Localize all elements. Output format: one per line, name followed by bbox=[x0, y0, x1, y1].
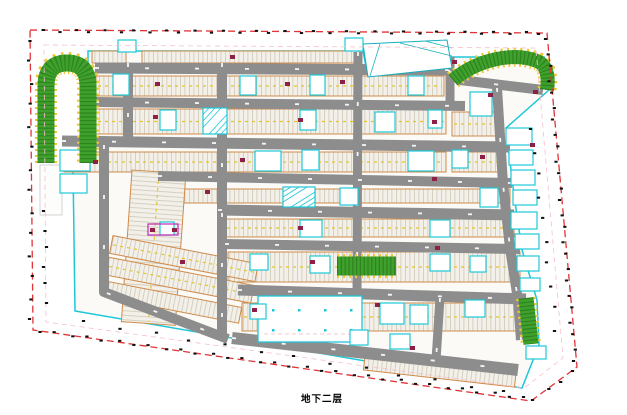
equipment-marker bbox=[252, 308, 257, 312]
survey-tick bbox=[541, 217, 544, 219]
stair-core-room bbox=[511, 212, 537, 229]
survey-tick bbox=[367, 374, 370, 376]
survey-tick bbox=[193, 30, 196, 32]
survey-tick bbox=[463, 31, 466, 33]
survey-tick bbox=[560, 188, 563, 190]
survey-tick bbox=[42, 266, 45, 268]
column-dot bbox=[272, 329, 275, 332]
survey-tick bbox=[328, 32, 331, 34]
survey-tick bbox=[365, 367, 368, 369]
equipment-marker bbox=[93, 160, 98, 164]
stair-core-room bbox=[390, 334, 410, 349]
survey-tick bbox=[435, 31, 438, 33]
stair-core-room bbox=[340, 188, 358, 205]
survey-tick bbox=[508, 33, 511, 35]
survey-tick bbox=[550, 92, 553, 94]
survey-tick bbox=[402, 30, 405, 32]
survey-tick bbox=[259, 361, 262, 363]
survey-tick bbox=[554, 134, 557, 136]
survey-tick bbox=[31, 275, 34, 277]
survey-tick bbox=[223, 343, 226, 345]
survey-tick bbox=[255, 30, 258, 32]
survey-tick bbox=[470, 386, 473, 388]
survey-tick bbox=[553, 107, 556, 109]
survey-tick bbox=[558, 199, 561, 201]
survey-tick bbox=[30, 83, 33, 85]
survey-tick bbox=[71, 335, 74, 337]
stair-core-room bbox=[465, 300, 485, 317]
survey-tick bbox=[547, 388, 550, 390]
survey-tick bbox=[226, 357, 229, 359]
stair-core-room bbox=[513, 190, 537, 205]
stair-core-room bbox=[452, 150, 468, 168]
survey-tick bbox=[568, 322, 571, 324]
survey-tick bbox=[165, 29, 168, 31]
equipment-marker bbox=[180, 260, 185, 264]
survey-tick bbox=[29, 169, 32, 171]
survey-tick bbox=[554, 161, 557, 163]
stair-core-room bbox=[160, 110, 176, 130]
equipment-marker bbox=[205, 190, 210, 194]
stair-core-room bbox=[310, 256, 330, 273]
survey-tick bbox=[165, 348, 168, 350]
equipment-marker bbox=[153, 115, 158, 119]
equipment-marker bbox=[230, 55, 235, 59]
stair-core-room bbox=[526, 346, 546, 359]
stair-core-room bbox=[60, 174, 87, 193]
survey-tick bbox=[428, 383, 431, 385]
survey-tick bbox=[222, 30, 225, 32]
survey-tick bbox=[480, 33, 483, 35]
survey-tick bbox=[553, 306, 556, 308]
equipment-marker bbox=[488, 93, 493, 97]
survey-tick bbox=[118, 328, 121, 330]
equipment-marker bbox=[310, 260, 315, 264]
survey-tick bbox=[567, 268, 570, 270]
survey-tick bbox=[283, 30, 286, 32]
stair-core-room bbox=[410, 305, 428, 324]
side-lane-strip bbox=[40, 165, 62, 215]
survey-tick bbox=[29, 103, 32, 105]
equipment-marker bbox=[240, 158, 245, 162]
survey-tick bbox=[273, 361, 276, 363]
stair-core-room bbox=[430, 220, 450, 237]
survey-tick bbox=[531, 399, 534, 401]
stair-core-room bbox=[408, 76, 424, 95]
survey-tick bbox=[287, 366, 290, 368]
survey-tick bbox=[544, 38, 547, 40]
survey-tick bbox=[53, 331, 56, 333]
escalator-core-room bbox=[283, 187, 315, 207]
survey-tick bbox=[75, 29, 78, 31]
survey-tick bbox=[345, 30, 348, 32]
parking-row bbox=[218, 219, 514, 237]
survey-tick bbox=[85, 335, 88, 337]
stair-core-room bbox=[113, 74, 129, 95]
survey-tick bbox=[565, 280, 568, 282]
survey-tick bbox=[31, 212, 34, 214]
survey-tick bbox=[418, 33, 421, 35]
survey-tick bbox=[30, 146, 33, 148]
parking-row bbox=[96, 76, 444, 96]
survey-tick bbox=[38, 331, 41, 333]
survey-tick bbox=[212, 353, 215, 355]
stair-core-room bbox=[350, 330, 368, 345]
survey-tick bbox=[537, 172, 540, 174]
stair-core-room bbox=[480, 188, 498, 207]
floor-plan-canvas bbox=[0, 0, 627, 415]
survey-tick bbox=[82, 320, 85, 322]
survey-tick bbox=[547, 53, 550, 55]
equipment-marker bbox=[432, 177, 437, 181]
parking-row bbox=[92, 51, 126, 63]
equipment-marker bbox=[410, 346, 415, 350]
stair-core-room bbox=[380, 303, 404, 324]
survey-tick bbox=[27, 60, 30, 62]
survey-tick bbox=[187, 340, 190, 342]
survey-tick bbox=[557, 172, 560, 174]
stair-core-room bbox=[509, 150, 533, 165]
survey-tick bbox=[571, 370, 574, 372]
survey-tick bbox=[381, 379, 384, 381]
survey-tick bbox=[549, 286, 552, 288]
survey-tick bbox=[146, 344, 149, 346]
survey-tick bbox=[103, 29, 106, 31]
survey-tick bbox=[564, 253, 567, 255]
survey-tick bbox=[525, 31, 528, 33]
equipment-marker bbox=[375, 303, 380, 307]
survey-tick bbox=[29, 298, 32, 300]
survey-tick bbox=[240, 357, 243, 359]
stair-core-room bbox=[511, 170, 535, 185]
stair-core-room bbox=[517, 256, 539, 271]
survey-tick bbox=[320, 370, 323, 372]
survey-tick bbox=[529, 128, 532, 130]
stair-core-room bbox=[240, 76, 256, 95]
equipment-marker bbox=[172, 228, 177, 232]
survey-tick bbox=[45, 302, 48, 304]
survey-tick bbox=[27, 189, 30, 191]
survey-tick bbox=[312, 30, 315, 32]
driving-lane bbox=[95, 102, 465, 106]
survey-tick bbox=[42, 210, 45, 212]
stair-core-room bbox=[255, 151, 281, 171]
survey-tick bbox=[574, 349, 577, 351]
equipment-marker bbox=[285, 82, 290, 86]
survey-tick bbox=[300, 32, 303, 34]
survey-tick bbox=[545, 261, 548, 263]
survey-tick bbox=[193, 353, 196, 355]
parking-row bbox=[142, 51, 358, 63]
column-dot bbox=[350, 309, 353, 312]
survey-tick bbox=[397, 375, 400, 377]
survey-tick bbox=[447, 33, 450, 35]
equipment-marker bbox=[150, 228, 155, 232]
equipment-marker bbox=[480, 155, 485, 159]
survey-tick bbox=[28, 40, 31, 42]
survey-tick bbox=[559, 381, 562, 383]
stair-core-room bbox=[408, 151, 434, 171]
survey-tick bbox=[570, 306, 573, 308]
survey-tick bbox=[549, 65, 552, 67]
survey-tick bbox=[42, 29, 45, 31]
survey-tick bbox=[132, 29, 135, 31]
survey-tick bbox=[568, 295, 571, 297]
survey-tick bbox=[45, 246, 48, 248]
equipment-marker bbox=[452, 60, 457, 64]
survey-tick bbox=[537, 197, 540, 199]
equipment-marker bbox=[432, 120, 437, 124]
stair-core-room bbox=[310, 75, 325, 95]
survey-tick bbox=[267, 32, 270, 34]
survey-tick bbox=[461, 387, 464, 389]
column-dot bbox=[324, 329, 327, 332]
survey-tick bbox=[571, 333, 574, 335]
equipment-marker bbox=[530, 143, 535, 147]
survey-tick bbox=[58, 31, 61, 33]
equipment-marker bbox=[298, 118, 303, 122]
stair-core-room bbox=[375, 112, 395, 132]
survey-tick bbox=[260, 351, 263, 353]
survey-tick bbox=[551, 119, 554, 121]
survey-tick bbox=[357, 32, 360, 34]
survey-tick bbox=[522, 396, 525, 398]
survey-tick bbox=[28, 255, 31, 257]
survey-tick bbox=[27, 126, 30, 128]
stair-core-room bbox=[118, 40, 136, 52]
survey-tick bbox=[572, 360, 575, 362]
stair-core-room bbox=[300, 220, 322, 237]
survey-tick bbox=[148, 31, 151, 33]
survey-tick bbox=[553, 330, 556, 332]
cad-viewport: 地下二层 bbox=[0, 0, 627, 415]
survey-tick bbox=[292, 355, 295, 357]
column-dot bbox=[298, 309, 301, 312]
survey-tick bbox=[447, 387, 450, 389]
survey-tick bbox=[492, 31, 495, 33]
stair-core-room bbox=[515, 234, 539, 249]
equipment-marker bbox=[533, 90, 538, 94]
survey-tick bbox=[373, 30, 376, 32]
survey-tick bbox=[328, 363, 331, 365]
survey-tick bbox=[306, 366, 309, 368]
stair-core-room bbox=[470, 256, 486, 272]
survey-tick bbox=[508, 396, 511, 398]
survey-tick bbox=[414, 383, 417, 385]
survey-tick bbox=[390, 32, 393, 34]
survey-tick bbox=[210, 32, 213, 34]
survey-tick bbox=[556, 145, 559, 147]
survey-tick bbox=[99, 340, 102, 342]
stair-core-room bbox=[345, 38, 363, 51]
survey-tick bbox=[400, 379, 403, 381]
stair-core-room bbox=[506, 128, 532, 145]
survey-tick bbox=[433, 378, 436, 380]
survey-tick bbox=[537, 33, 540, 35]
survey-tick bbox=[177, 32, 180, 34]
survey-tick bbox=[155, 332, 158, 334]
survey-tick bbox=[561, 241, 564, 243]
equipment-marker bbox=[340, 80, 345, 84]
survey-tick bbox=[475, 392, 478, 394]
survey-tick bbox=[43, 230, 46, 232]
escalator-core-room bbox=[203, 108, 227, 134]
survey-tick bbox=[334, 370, 337, 372]
survey-tick bbox=[561, 214, 564, 216]
survey-tick bbox=[545, 241, 548, 243]
survey-tick bbox=[547, 80, 550, 82]
survey-tick bbox=[120, 31, 123, 33]
survey-tick bbox=[132, 344, 135, 346]
survey-tick bbox=[238, 32, 241, 34]
survey-tick bbox=[179, 348, 182, 350]
stair-core-room bbox=[520, 278, 540, 291]
floor-title-label: 地下二层 bbox=[301, 391, 343, 405]
survey-tick bbox=[87, 31, 90, 33]
stair-core-room bbox=[428, 110, 442, 128]
stair-core-room bbox=[250, 254, 268, 270]
survey-tick bbox=[28, 318, 31, 320]
survey-tick bbox=[43, 282, 46, 284]
survey-tick bbox=[353, 374, 356, 376]
survey-tick bbox=[502, 390, 505, 392]
equipment-marker bbox=[298, 226, 303, 230]
equipment-marker bbox=[155, 82, 160, 86]
survey-tick bbox=[563, 226, 566, 228]
survey-tick bbox=[494, 392, 497, 394]
column-dot bbox=[272, 309, 275, 312]
column-dot bbox=[298, 329, 301, 332]
survey-tick bbox=[533, 152, 536, 154]
stair-core-room bbox=[302, 150, 319, 170]
survey-tick bbox=[29, 232, 32, 234]
stair-core-room bbox=[430, 254, 450, 271]
open-hall-room bbox=[258, 296, 362, 342]
survey-tick bbox=[118, 340, 121, 342]
column-dot bbox=[324, 309, 327, 312]
equipment-marker bbox=[435, 246, 440, 250]
parking-row bbox=[160, 189, 510, 203]
